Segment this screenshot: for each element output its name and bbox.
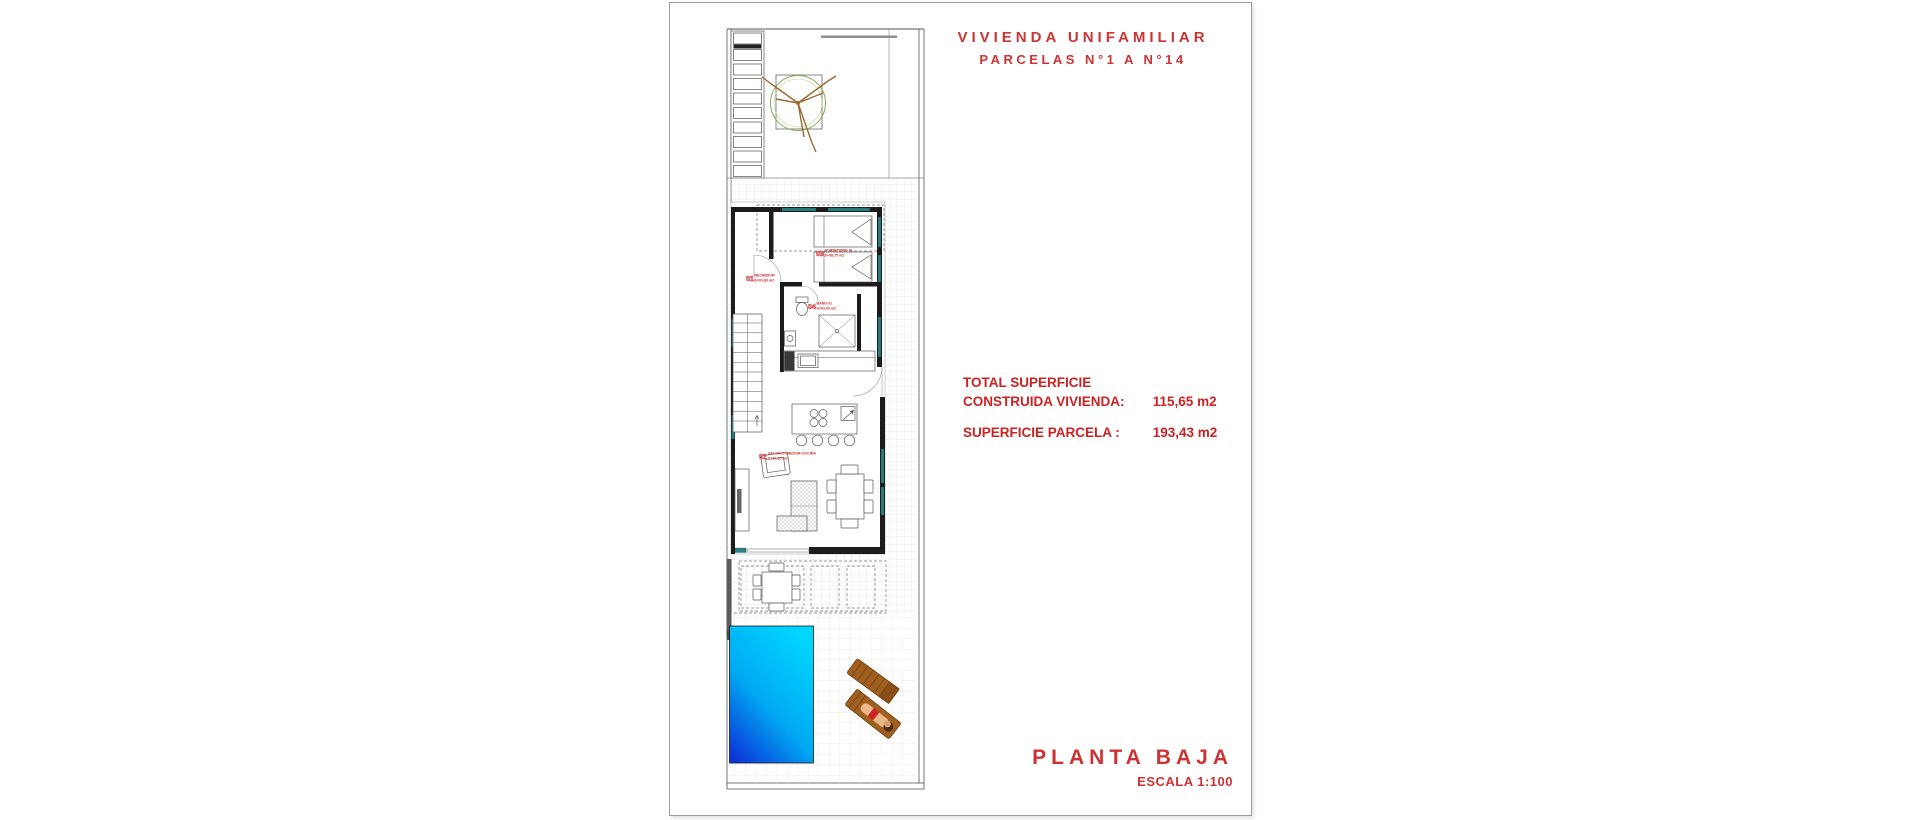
room-label-name: SALON-COMEDOR-COCINA — [768, 452, 816, 456]
room-label-area: S=03,80 m2 — [755, 279, 775, 283]
room-label-name: RECIBIDOR — [755, 274, 776, 278]
entry-gate — [821, 36, 897, 38]
entry-steps — [731, 31, 764, 178]
room-label-num: 01 — [746, 276, 754, 283]
room-label-num: 04 — [808, 304, 816, 311]
cooktop — [841, 407, 855, 421]
toilet — [796, 297, 808, 303]
plan-name: PLANTA BAJA — [1032, 746, 1233, 770]
room-label-num: 02 — [759, 454, 767, 461]
superficie-parcela-value: 193,43 m2 — [1153, 425, 1218, 440]
area-summary: TOTAL SUPERFICIE CONSTRUIDA VIVIENDA: 11… — [963, 373, 1245, 442]
dining-table — [836, 474, 864, 519]
room-label-area: S=03,00 m2 — [817, 307, 837, 311]
pool — [730, 626, 814, 763]
room-label-area: S=37,35 m2 — [768, 457, 788, 461]
sheet-title: VIVIENDA UNIFAMILIAR PARCELAS N°1 A N°14 — [928, 29, 1238, 67]
title-line-1: VIVIENDA UNIFAMILIAR — [928, 29, 1238, 46]
garden-rear-wall — [727, 783, 924, 789]
room-label-num: 03 — [816, 251, 824, 258]
plan-scale: ESCALA 1:100 — [1032, 774, 1233, 789]
room-label-name: BAÑO 01 — [817, 301, 833, 306]
sheet-footer: PLANTA BAJA ESCALA 1:100 — [1032, 746, 1233, 789]
total-superficie-label-1: TOTAL SUPERFICIE — [963, 373, 1149, 392]
room-label-area: S=08,75 m2 — [825, 254, 845, 258]
front-yard — [727, 29, 924, 178]
house: 01 RECIBIDOR S=03,80 m2 02 SALON-COMEDOR… — [731, 202, 885, 554]
floor-plan: 01 RECIBIDOR S=03,80 m2 02 SALON-COMEDOR… — [724, 19, 929, 794]
interior-stairs — [733, 314, 762, 432]
outdoor-table — [762, 572, 792, 603]
superficie-parcela-label: SUPERFICIE PARCELA : — [963, 423, 1149, 442]
title-line-2: PARCELAS N°1 A N°14 — [928, 52, 1238, 67]
drawing-sheet: VIVIENDA UNIFAMILIAR PARCELAS N°1 A N°14… — [669, 2, 1252, 816]
room-label-name: DORMITORIO 01 — [825, 249, 853, 253]
total-superficie-value: 115,65 m2 — [1153, 394, 1217, 409]
total-superficie-label-2: CONSTRUIDA VIVIENDA: — [963, 392, 1149, 411]
